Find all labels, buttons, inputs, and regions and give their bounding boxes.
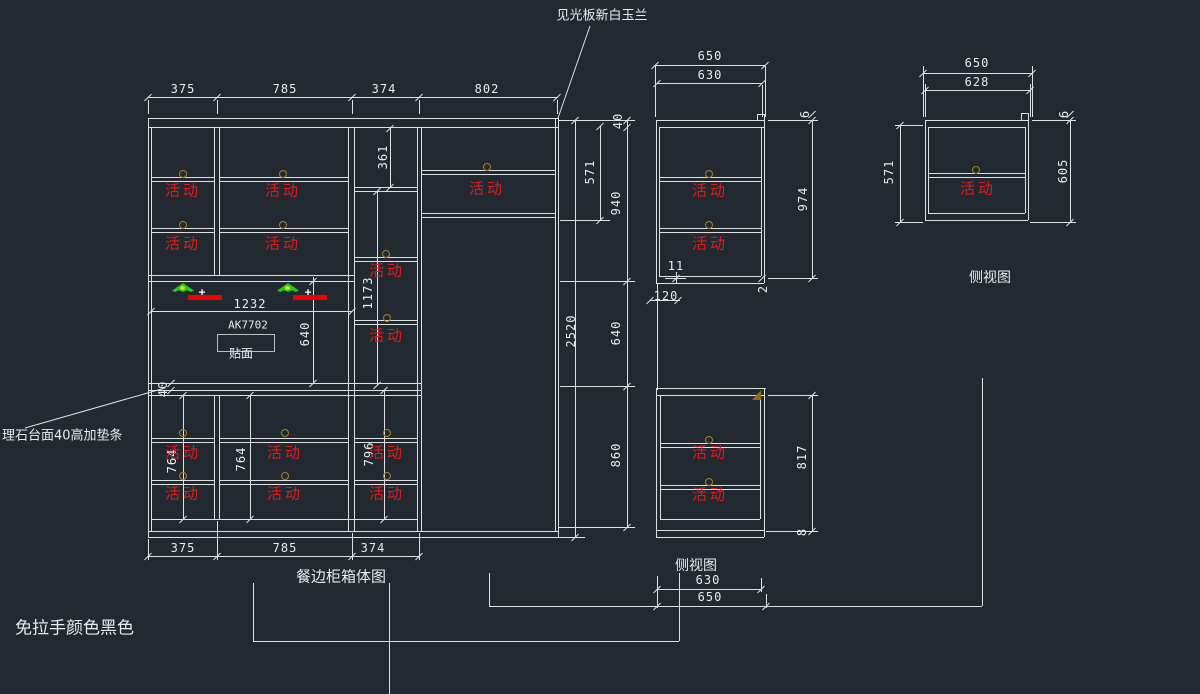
leader-line — [25, 388, 165, 428]
leader-lines — [0, 0, 1200, 694]
cad-canvas: 3757853748023757853741232640403611173764… — [0, 0, 1200, 694]
leader-line — [558, 26, 590, 118]
